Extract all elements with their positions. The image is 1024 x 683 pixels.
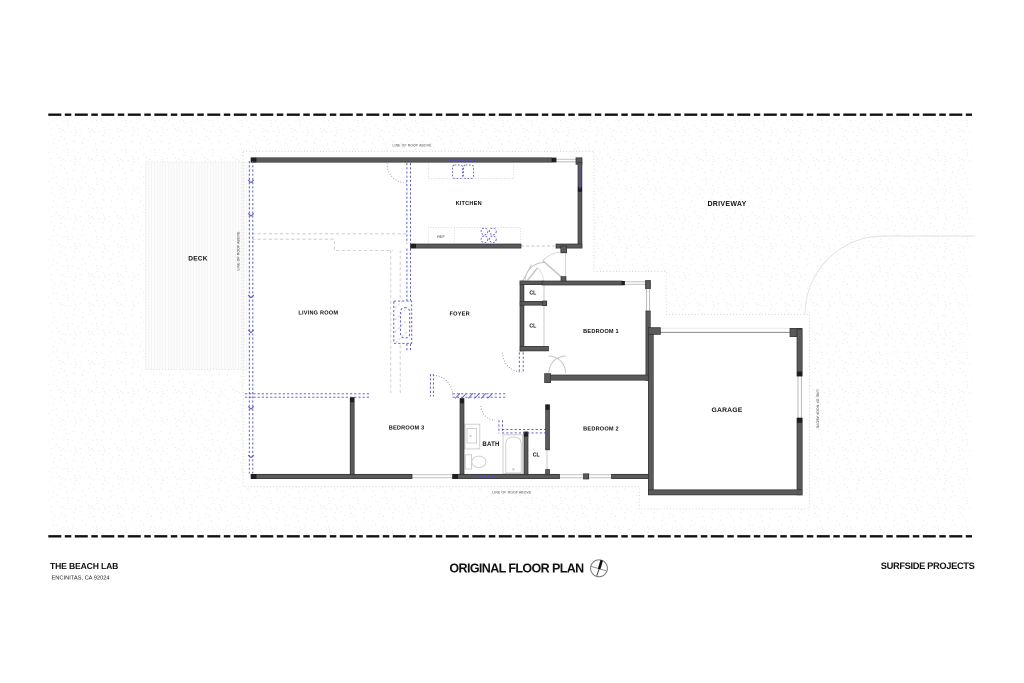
svg-text:BEDROOM 1: BEDROOM 1: [583, 329, 619, 335]
svg-text:LINE OF ROOF ABOVE: LINE OF ROOF ABOVE: [492, 490, 532, 494]
svg-text:CL: CL: [529, 290, 537, 296]
svg-text:GARAGE: GARAGE: [711, 407, 742, 414]
svg-text:THE BEACH LAB: THE BEACH LAB: [50, 561, 118, 571]
svg-text:REF: REF: [437, 234, 445, 239]
svg-text:DECK: DECK: [188, 256, 208, 263]
svg-text:CL: CL: [533, 453, 541, 459]
svg-text:ORIGINAL FLOOR PLAN: ORIGINAL FLOOR PLAN: [449, 561, 584, 575]
svg-text:SURFSIDE PROJECTS: SURFSIDE PROJECTS: [881, 561, 975, 571]
svg-text:KITCHEN: KITCHEN: [456, 201, 482, 207]
svg-text:BEDROOM 3: BEDROOM 3: [389, 426, 425, 432]
svg-text:ENCINITAS, CA 92024: ENCINITAS, CA 92024: [52, 575, 110, 581]
svg-text:LINE OF ROOF ABOVE: LINE OF ROOF ABOVE: [816, 389, 820, 429]
svg-text:LINE OF ROOF ABOVE: LINE OF ROOF ABOVE: [237, 231, 241, 271]
svg-text:LIVING ROOM: LIVING ROOM: [298, 311, 338, 317]
svg-text:DRIVEWAY: DRIVEWAY: [707, 201, 746, 208]
svg-text:LINE OF ROOF ABOVE: LINE OF ROOF ABOVE: [392, 144, 432, 148]
svg-text:FOYER: FOYER: [450, 311, 470, 317]
svg-text:BATH: BATH: [482, 441, 499, 448]
svg-text:BEDROOM 2: BEDROOM 2: [583, 426, 619, 432]
svg-text:CL: CL: [529, 323, 537, 329]
